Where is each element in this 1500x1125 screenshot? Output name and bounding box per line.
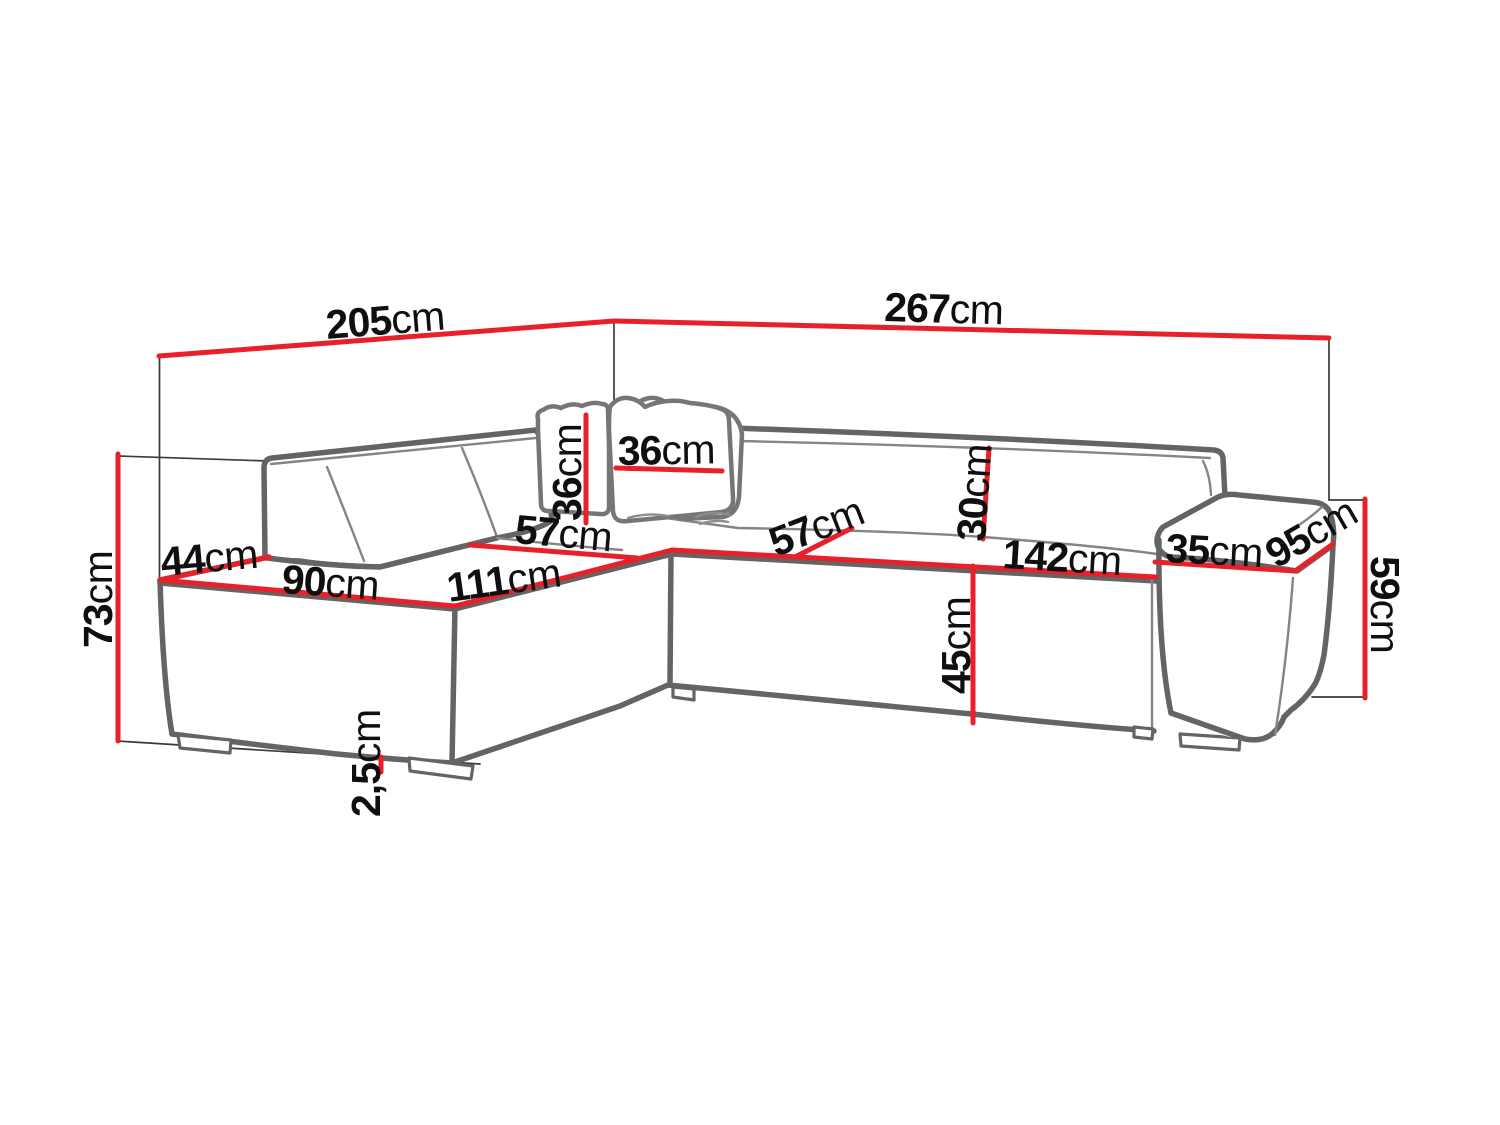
svg-text:59cm: 59cm — [1362, 556, 1408, 653]
svg-text:205cm: 205cm — [324, 293, 446, 348]
svg-text:30cm: 30cm — [948, 442, 1001, 542]
svg-text:36cm: 36cm — [544, 424, 590, 521]
svg-text:35cm: 35cm — [1165, 525, 1265, 576]
svg-text:73cm: 73cm — [75, 551, 121, 648]
svg-text:44cm: 44cm — [159, 531, 260, 585]
svg-text:267cm: 267cm — [884, 284, 1004, 333]
svg-text:36cm: 36cm — [617, 426, 715, 474]
svg-text:142cm: 142cm — [1001, 531, 1123, 584]
svg-text:45cm: 45cm — [933, 597, 979, 694]
svg-text:2,5cm: 2,5cm — [343, 709, 389, 817]
svg-text:90cm: 90cm — [280, 556, 380, 609]
